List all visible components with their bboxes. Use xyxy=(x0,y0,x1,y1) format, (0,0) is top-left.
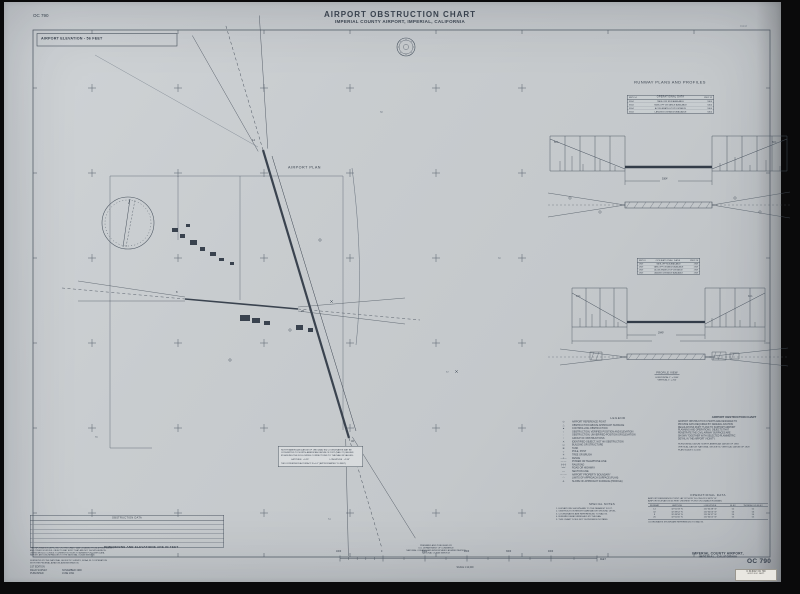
column-header: LATITUDE xyxy=(661,504,693,507)
nad-footer: THIS CONVERSION ACCURACY IS ±0.1" (APPRO… xyxy=(281,462,360,465)
aoc-info-title: AIRPORT OBSTRUCTION CHART xyxy=(678,416,790,419)
legend-items: ⊙ AIRPORT REFERENCE POINT △ OBSTRUCTION … xyxy=(557,421,679,484)
nad-note-lines: NORTH AMERICAN DATUM OF 1983 (NAD 83) CO… xyxy=(281,449,360,457)
scale-bar-labels: 1000 0 1000 2000 3000 4000 FEET xyxy=(336,550,606,556)
edition-row: PUBLISHEDJUNE 1991 xyxy=(30,573,100,576)
odt-columns: RUNWAY LATITUDE LONGITUDE ELEV THRESHOLD… xyxy=(648,503,768,507)
footer-chart-id: OC 790 xyxy=(747,558,771,565)
chart-title: AIRPORT OBSTRUCTION CHART xyxy=(250,10,550,19)
chart-subtitle: IMPERIAL COUNTY AIRPORT, IMPERIAL, CALIF… xyxy=(250,19,550,24)
aoc-info-line: DETAIL IN THE AIRPORT VICINITY. xyxy=(678,437,790,440)
profile-scale-v: VERTICAL 1" = 200' xyxy=(641,379,693,382)
aoc-info-lines: AIRPORT OBSTRUCTION CHARTS ARE DESIGNED … xyxy=(678,420,790,440)
nad-lon: LONGITUDE +2.95" xyxy=(329,458,349,461)
col-right: RWY 32 xyxy=(704,96,712,99)
table-title: OPERATIONAL DATA xyxy=(656,259,681,262)
col-left: RWY 8 xyxy=(639,259,646,262)
table-rows: 5304TAKE-OFF RUN AVAILABLE5304 5304TAKE-… xyxy=(628,100,714,114)
table-rows: 2949TAKE-OFF RUN AVAILABLE2949 2949TAKE-… xyxy=(638,263,700,275)
legend-symbol-icon: ∠ xyxy=(557,480,570,483)
aoc-info: AIRPORT OBSTRUCTION CHART AIRPORT OBSTRU… xyxy=(678,416,790,451)
scale-label: 0 xyxy=(381,550,382,553)
nad-lat: LATITUDE +0.25" xyxy=(291,458,309,461)
fine-print: THE INFORMATION DEPICTED ON THIS CHART W… xyxy=(30,547,105,557)
special-notes-lines: 1. ELEVATIONS SHOWN ARE TO THE NEAREST F… xyxy=(556,507,648,521)
aoc-spec-line: PLAN SCALE 1:12,000 xyxy=(678,448,790,451)
length-label: 2949' xyxy=(658,332,664,335)
credit-line: WITH THE FEDERAL AVIATION ADMINISTRATION… xyxy=(30,562,140,565)
scale-label: 4000 xyxy=(548,550,553,553)
obstruction-data-box: OBSTRUCTION DATA xyxy=(30,515,224,548)
spot-elevation: 55 xyxy=(95,436,98,439)
column-header: RUNWAY xyxy=(648,504,661,507)
legend-item: ∠ SLOPE OF APPROACH SURFACE (PROFILE) xyxy=(557,480,679,483)
operational-header-line: AIRPORT ELEVATION 56 FEET (HIGHEST POINT… xyxy=(648,500,768,503)
nad-values: LATITUDE +0.25" LONGITUDE +2.95" xyxy=(281,458,360,461)
runway-plans-title: RUNWAY PLANS AND PROFILES xyxy=(600,80,740,85)
col-right: RWY 26 xyxy=(690,259,698,262)
legend-title: LEGEND xyxy=(557,417,679,420)
table-row: 2949LANDING DISTANCE AVAILABLE2949 xyxy=(638,272,700,275)
length-label: 5304' xyxy=(662,178,668,181)
slope-label: 50:1 xyxy=(554,141,558,144)
legend: LEGEND ⊙ AIRPORT REFERENCE POINT △ OBSTR… xyxy=(557,417,679,484)
agency-seal-icon xyxy=(397,38,415,56)
sticker-line2: GOVT. DOC. DEPT. xyxy=(736,573,776,575)
special-notes-title: SPECIAL NOTES xyxy=(556,503,648,506)
runway-label: 32 xyxy=(351,440,354,443)
airport-plan-label: AIRPORT PLAN xyxy=(288,165,321,170)
slope-label: 34:1 xyxy=(576,295,580,298)
table-row: 5304LANDING DISTANCE AVAILABLE5304 xyxy=(628,110,714,113)
power-line xyxy=(95,55,258,147)
spot-elevation: 60 xyxy=(498,257,501,260)
operational-data-table-2: RWY 8 OPERATIONAL DATA RWY 26 2949TAKE-O… xyxy=(637,258,700,275)
road-lines xyxy=(352,168,359,345)
spot-elevation: 58 xyxy=(380,111,383,114)
table-row: 2632°50'00" N115°34'05" W 5555 xyxy=(648,516,768,519)
scale-ratio: SCALE 1:12,000 xyxy=(430,566,500,569)
operational-data-table-bottom: OPERATIONAL DATA AIRPORT REFERENCE POINT… xyxy=(648,494,768,523)
runway-label: 26 xyxy=(301,310,304,313)
scanned-chart-photo: { "frame": { "chart_id_top": "OC 790", "… xyxy=(0,0,800,594)
odt-footnote: COORDINATES SHOWN ARE REFERENCED TO NAD … xyxy=(648,519,768,523)
col-left: RWY 14 xyxy=(629,96,637,99)
elevation-box-label: AIRPORT ELEVATION - 56 FEET xyxy=(41,36,103,41)
column-header: THRESHOLD ELEV xyxy=(739,504,767,507)
building-symbols xyxy=(172,224,313,332)
table-title: OPERATIONAL DATA xyxy=(657,96,685,99)
airport-boundary xyxy=(110,176,343,448)
profile-caption-title: PROFILE VIEW xyxy=(654,372,679,376)
column-header: ELEV xyxy=(727,504,739,507)
plan-strip-2 xyxy=(548,348,788,366)
plan-strip-1 xyxy=(548,192,790,218)
scale-label: 1000 xyxy=(336,550,341,553)
scale-label: 3000 xyxy=(506,550,511,553)
scale-label: 2000 xyxy=(464,550,469,553)
nad-note-box: NORTH AMERICAN DATUM OF 1983 (NAD 83) CO… xyxy=(278,446,363,467)
odt-rows: 1432°50'33" N115°34'48" W 5252 3232°49'5… xyxy=(648,508,768,519)
nad-note-line: BY ADDING THE FOLLOWING CORRECTIONS TO T… xyxy=(281,454,360,457)
credit-lines: SURVEYED BY THE NATIONAL GEODETIC SURVEY… xyxy=(30,559,140,564)
legend-item-label: SLOPE OF APPROACH SURFACE (PROFILE) xyxy=(572,480,623,483)
fine-print-line: REPORT ANY DISCREPANCIES TO THE NATIONAL… xyxy=(30,554,105,556)
aoc-info-specs: HORIZONTAL DATUM: NORTH AMERICAN DATUM O… xyxy=(678,442,790,451)
scale-label: 1000 xyxy=(422,550,427,553)
spot-elevation: 54 xyxy=(328,518,331,521)
chart-id-top: OC 790 xyxy=(33,13,63,18)
column-header: LONGITUDE xyxy=(693,504,727,507)
dimensions-note: DIMENSIONS AND ELEVATIONS ARE IN FEET xyxy=(104,546,178,549)
slope-label: 50:1 xyxy=(772,141,776,144)
operational-data-table-1: RWY 14 OPERATIONAL DATA RWY 32 5304TAKE-… xyxy=(627,95,714,114)
runway-label: 14 xyxy=(252,139,255,142)
special-note-line: 5. THIS CHART DOES NOT SUPERSEDE NOTAMS. xyxy=(556,518,648,521)
special-notes: SPECIAL NOTES 1. ELEVATIONS SHOWN ARE TO… xyxy=(556,503,648,521)
runway-label: 8 xyxy=(176,291,178,294)
edition-number: 91243 xyxy=(740,25,747,28)
slope-label: 34:1 xyxy=(748,295,752,298)
edition-block: 1ST EDITION FIELD SURVEYNOVEMBER 1990 PU… xyxy=(30,566,100,576)
profile-caption: PROFILE VIEW HORIZONTAL 1" = 2000' VERTI… xyxy=(641,367,693,381)
scale-unit: FEET xyxy=(600,558,606,561)
catalog-sticker: C 30.60/2: OC 790 GOVT. DOC. DEPT. xyxy=(735,569,777,581)
spot-elevation: 57 xyxy=(446,371,449,374)
